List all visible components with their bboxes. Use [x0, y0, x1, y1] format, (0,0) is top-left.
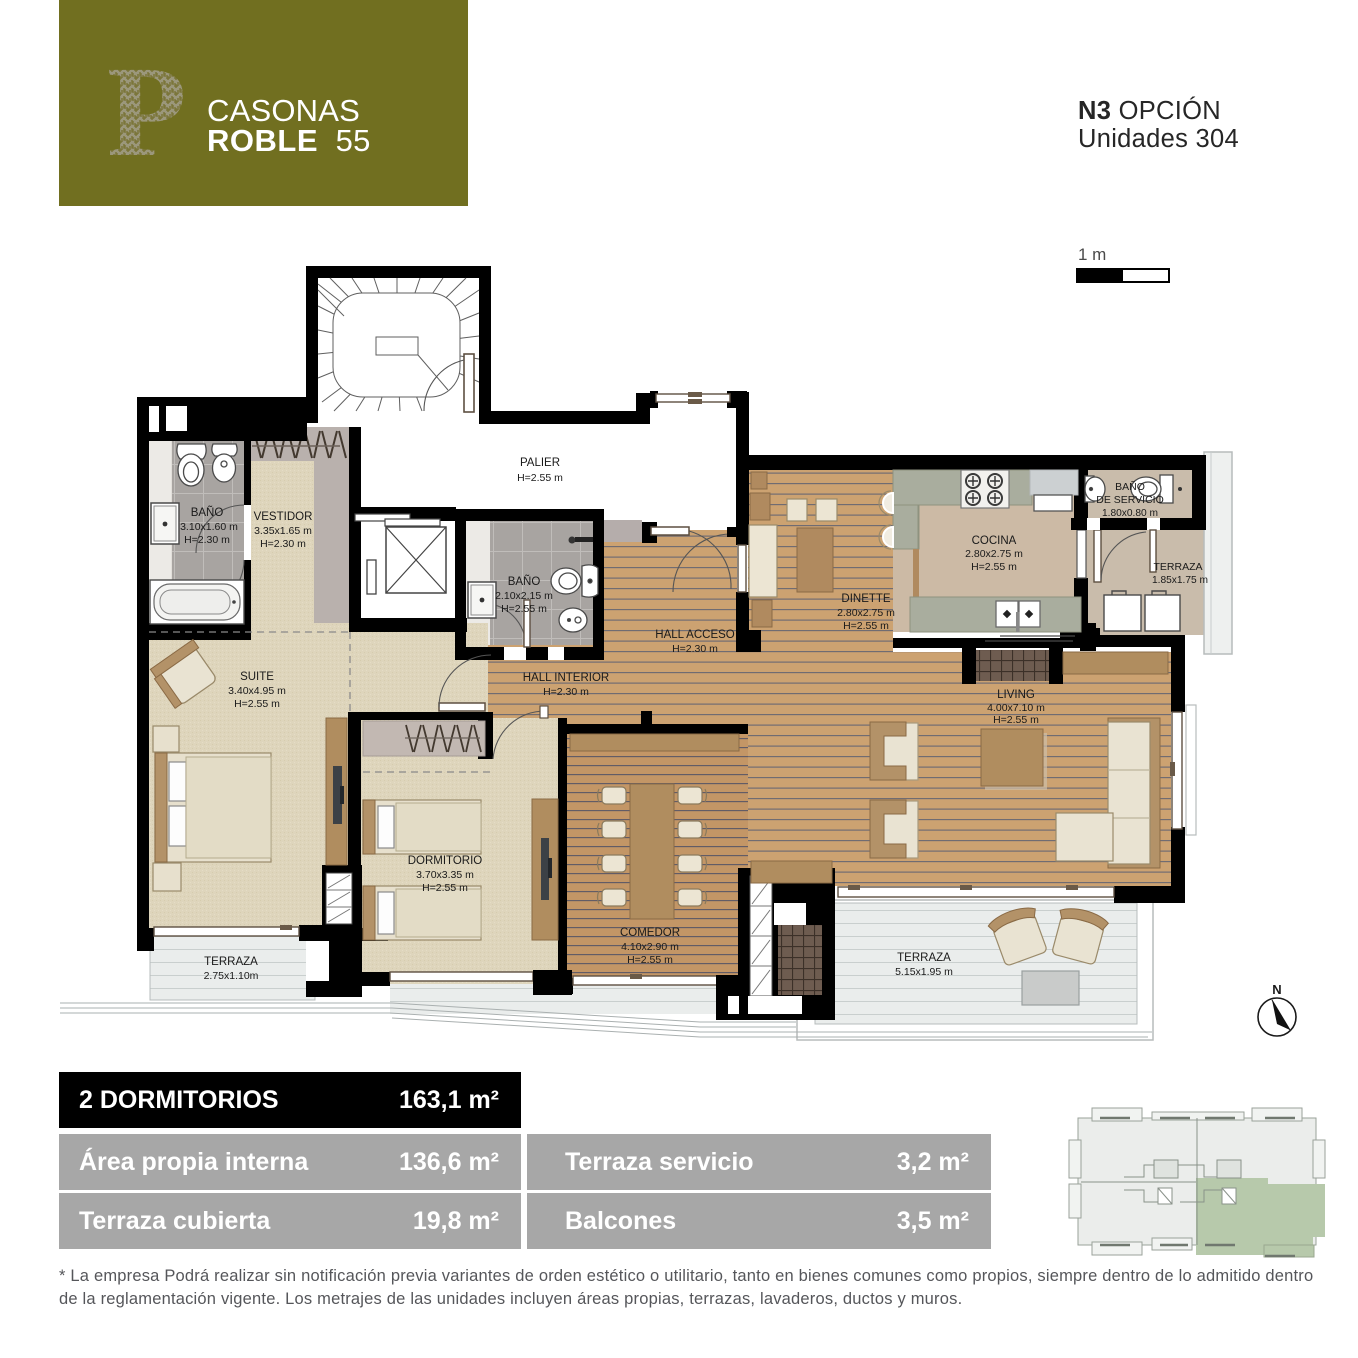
svg-text:H=2.55 m: H=2.55 m: [234, 698, 280, 710]
svg-text:H=2.55 m: H=2.55 m: [993, 714, 1039, 726]
svg-text:3.40x4.95 m: 3.40x4.95 m: [228, 685, 286, 697]
svg-text:VESTIDOR: VESTIDOR: [254, 511, 313, 523]
svg-text:SUITE: SUITE: [240, 671, 274, 683]
svg-text:DE SERVICIO: DE SERVICIO: [1096, 494, 1164, 506]
svg-text:4.00x7.10 m: 4.00x7.10 m: [987, 702, 1045, 714]
svg-text:1.85x1.75 m: 1.85x1.75 m: [1152, 575, 1208, 586]
svg-text:BAÑO: BAÑO: [191, 506, 224, 519]
svg-text:LIVING: LIVING: [997, 689, 1035, 701]
svg-text:DORMITORIO: DORMITORIO: [408, 855, 483, 867]
svg-text:PALIER: PALIER: [520, 457, 560, 469]
svg-text:2.75x1.10m: 2.75x1.10m: [204, 970, 259, 982]
svg-text:BAÑO: BAÑO: [1115, 480, 1145, 493]
svg-text:4.10x2.90 m: 4.10x2.90 m: [621, 941, 679, 953]
svg-text:COCINA: COCINA: [972, 535, 1017, 547]
svg-text:H=2.55 m: H=2.55 m: [501, 603, 547, 615]
svg-text:5.15x1.95 m: 5.15x1.95 m: [895, 966, 953, 978]
svg-text:TERRAZA: TERRAZA: [1153, 561, 1202, 573]
svg-text:2.80x2.75 m: 2.80x2.75 m: [965, 548, 1023, 560]
svg-text:3.35x1.65 m: 3.35x1.65 m: [254, 525, 312, 537]
svg-text:H=2.30 m: H=2.30 m: [672, 643, 718, 655]
svg-text:TERRAZA: TERRAZA: [204, 956, 258, 968]
svg-text:H=2.30 m: H=2.30 m: [543, 686, 589, 698]
svg-text:3.70x3.35 m: 3.70x3.35 m: [416, 869, 474, 881]
svg-text:H=2.30 m: H=2.30 m: [260, 538, 306, 550]
svg-text:2.10x2.15 m: 2.10x2.15 m: [495, 590, 553, 602]
svg-text:H=2.55 m: H=2.55 m: [627, 954, 673, 966]
svg-text:BAÑO: BAÑO: [508, 575, 541, 588]
svg-text:3.10x1.60 m: 3.10x1.60 m: [180, 521, 238, 533]
svg-text:HALL INTERIOR: HALL INTERIOR: [523, 672, 609, 684]
svg-text:N: N: [1272, 982, 1281, 997]
svg-text:TERRAZA: TERRAZA: [897, 952, 951, 964]
svg-text:2.80x2.75 m: 2.80x2.75 m: [837, 607, 895, 619]
svg-text:H=2.55 m: H=2.55 m: [843, 620, 889, 632]
svg-text:H=2.30 m: H=2.30 m: [184, 534, 230, 546]
svg-text:DINETTE: DINETTE: [841, 593, 891, 605]
svg-text:HALL ACCESO: HALL ACCESO: [655, 629, 735, 641]
svg-text:COMEDOR: COMEDOR: [620, 927, 680, 939]
svg-text:H=2.55 m: H=2.55 m: [517, 472, 563, 484]
svg-text:1.80x0.80 m: 1.80x0.80 m: [1102, 508, 1158, 519]
svg-text:H=2.55 m: H=2.55 m: [422, 882, 468, 894]
svg-text:H=2.55 m: H=2.55 m: [971, 561, 1017, 573]
